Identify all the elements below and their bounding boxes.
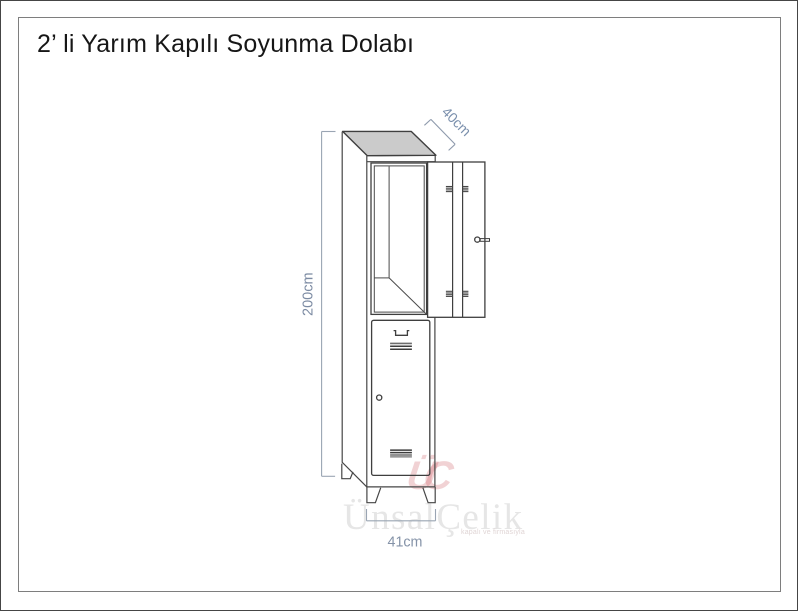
svg-text:200cm: 200cm bbox=[301, 272, 317, 316]
svg-text:41cm: 41cm bbox=[388, 535, 423, 551]
